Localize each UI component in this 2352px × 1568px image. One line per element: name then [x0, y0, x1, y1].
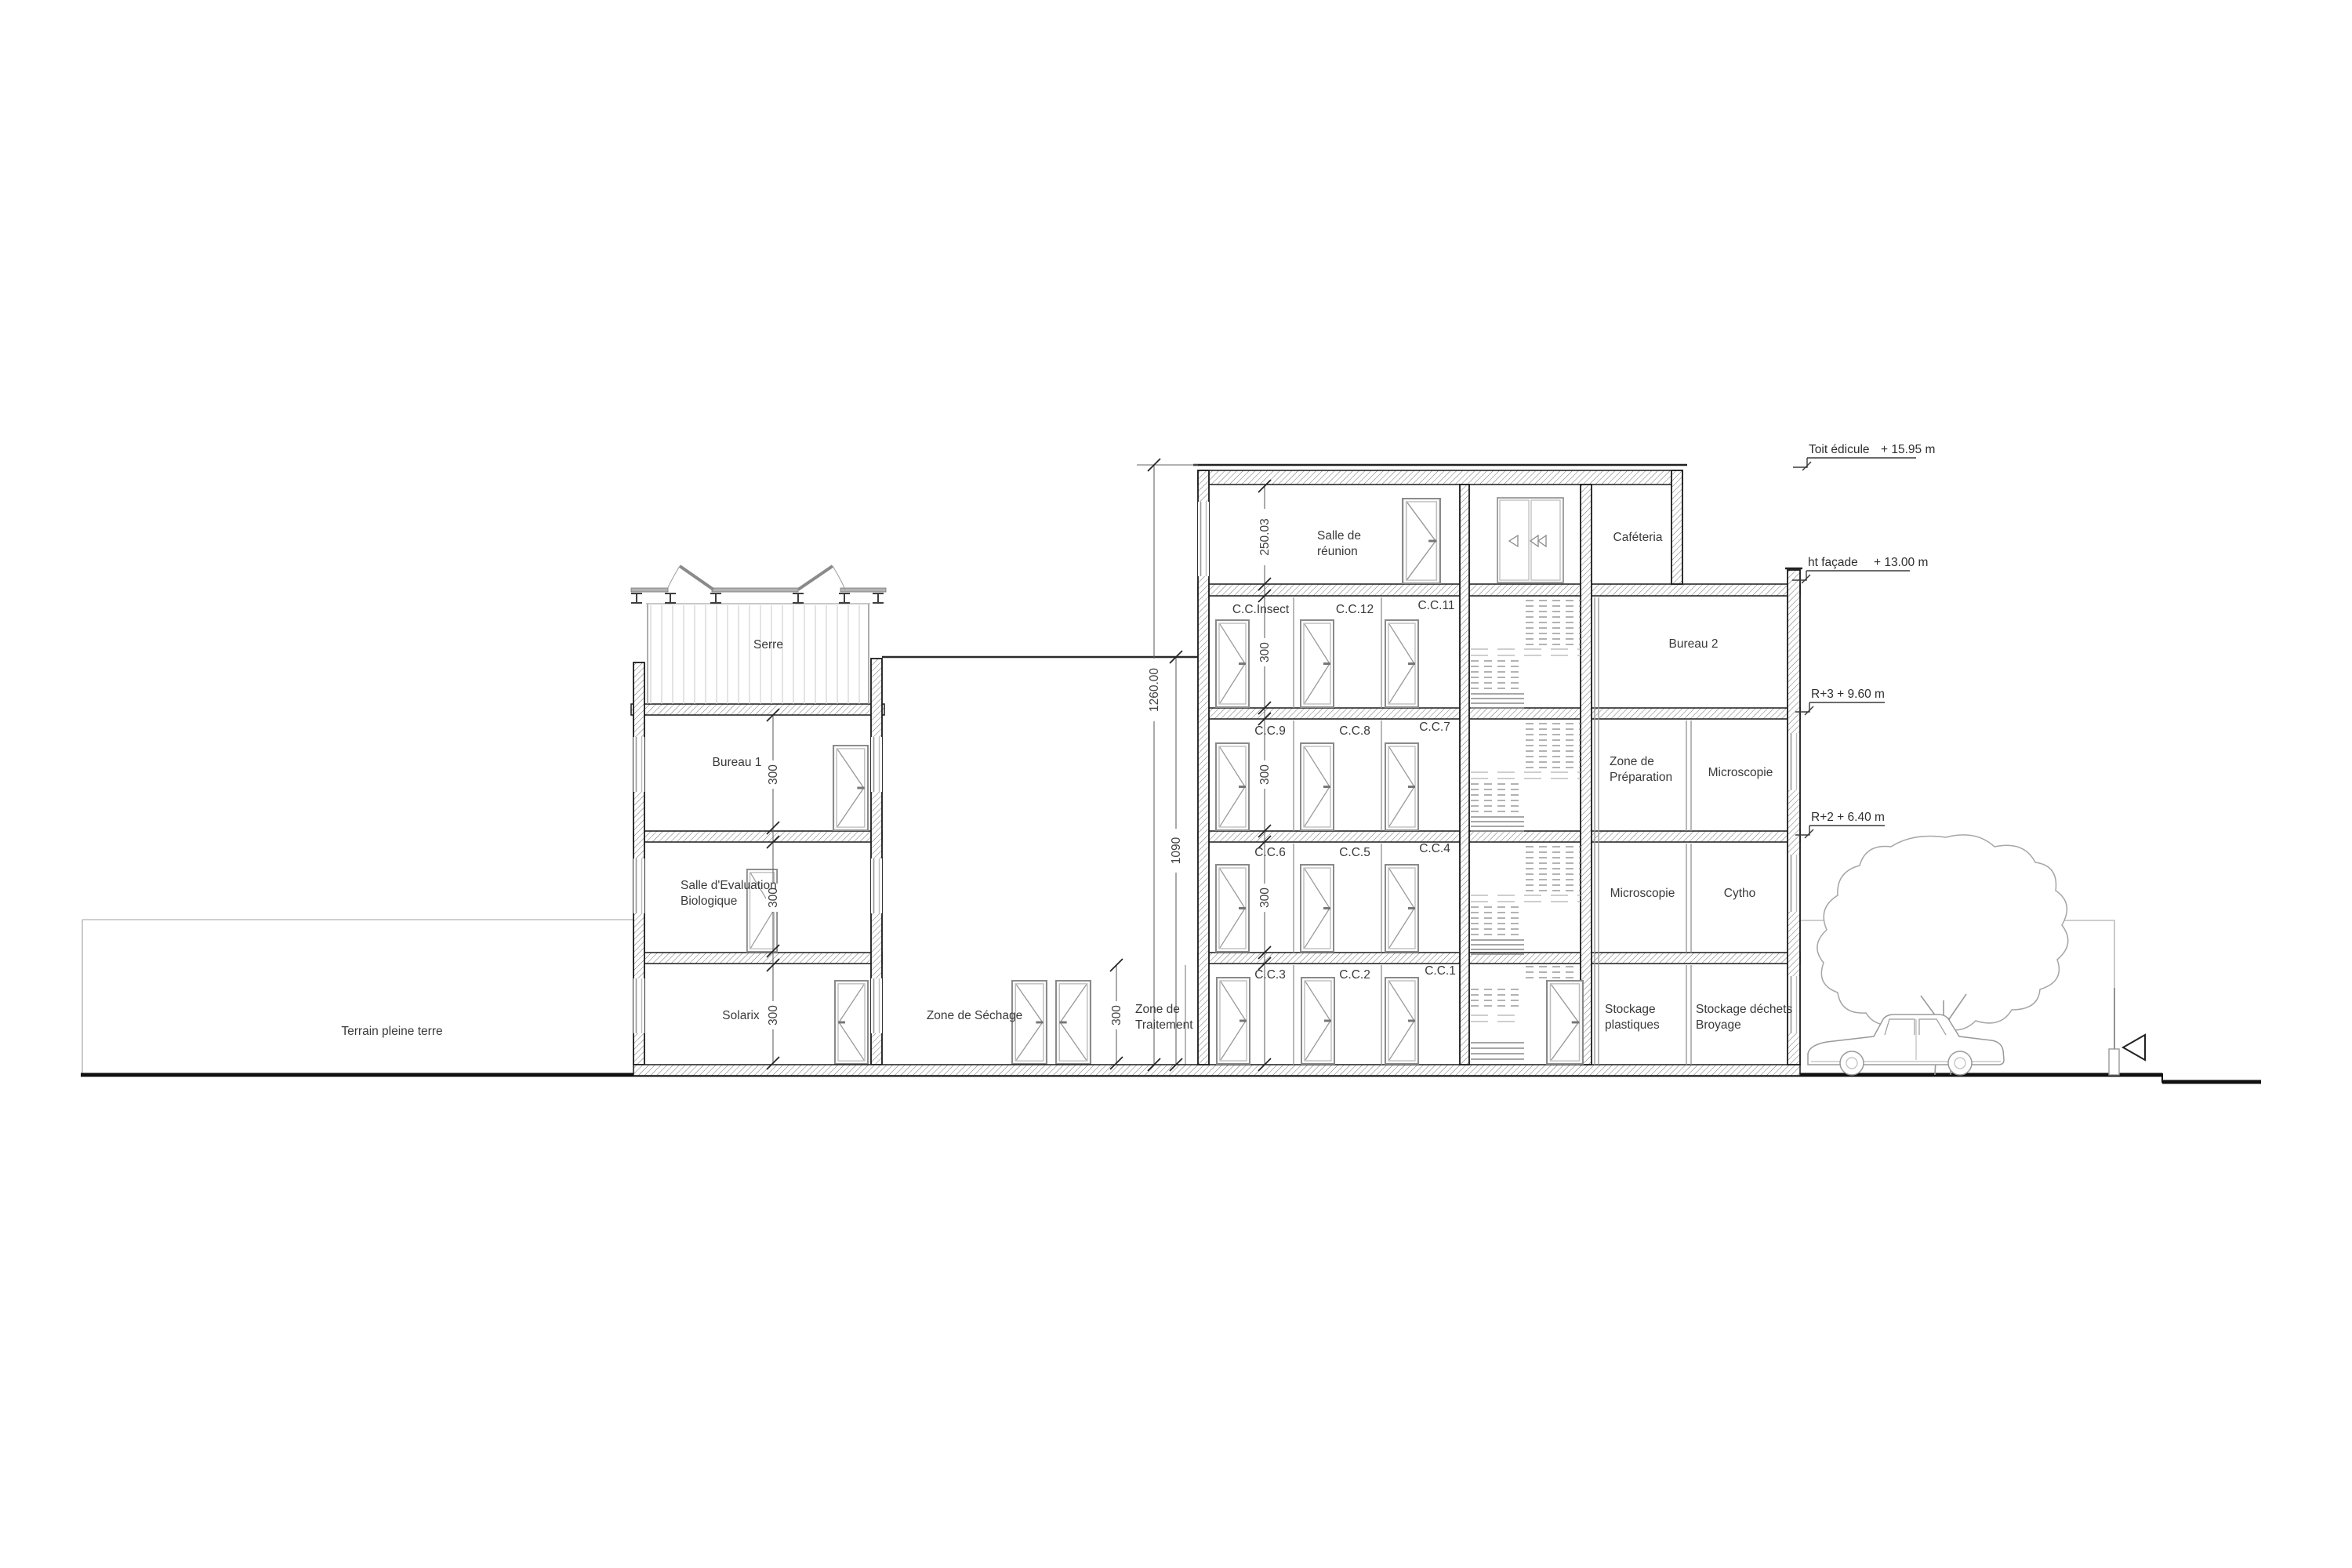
door-cc12 — [1301, 620, 1334, 707]
door-cc2 — [1301, 978, 1334, 1064]
boundary-post — [2109, 1049, 2119, 1075]
room-label-cc1: C.C.1 — [1425, 964, 1456, 978]
door-cc5 — [1301, 865, 1334, 952]
room-label-zone-preparation-1: Zone de — [1610, 755, 1654, 768]
serre-greenhouse — [646, 604, 870, 704]
door-cc3 — [1217, 978, 1250, 1064]
room-label-microscopie-r1: Microscopie — [1610, 887, 1675, 900]
dim-300-bureau1: 300 — [767, 764, 780, 785]
room-label-stockage-plastiques-2: plastiques — [1605, 1018, 1660, 1032]
room-label-salle-reunion-2: réunion — [1317, 545, 1358, 558]
dim-hall-height: 1090 — [1170, 837, 1183, 864]
serre-floor-slab — [631, 704, 884, 715]
room-label-salle-reunion-1: Salle de — [1317, 529, 1361, 543]
window-tower-edicule — [1198, 502, 1209, 576]
elevator — [1497, 498, 1563, 583]
room-label-bureau2: Bureau 2 — [1669, 637, 1719, 651]
room-label-bureau1: Bureau 1 — [713, 756, 762, 769]
window-leftwing-right-r1 — [871, 858, 882, 913]
room-label-cafeteria: Caféteria — [1613, 531, 1663, 544]
room-label-cc3: C.C.3 — [1254, 968, 1286, 982]
room-label-zone-sechage: Zone de Séchage — [927, 1009, 1022, 1022]
level-marker-labels: Toit édicule + 15.95 m ht façade + 13.00… — [1808, 443, 1935, 824]
car-wheel-front — [1948, 1051, 1972, 1075]
label-facade-value: + 13.00 m — [1874, 556, 1928, 569]
room-label-salle-eval-2: Biologique — [681, 895, 737, 908]
car-wheel-rear — [1840, 1051, 1864, 1075]
window-right-r1 — [1788, 855, 1799, 912]
label-r3: R+3 + 9.60 m — [1811, 688, 1885, 701]
label-r2: R+2 + 6.40 m — [1811, 811, 1885, 824]
dim-300-tower-r2: 300 — [1258, 764, 1272, 785]
room-label-cc-insect: C.C.Insect — [1232, 603, 1290, 616]
main-roof-slab — [1198, 584, 1800, 596]
label-toit-value: + 15.95 m — [1881, 443, 1935, 456]
room-label-cc7: C.C.7 — [1419, 720, 1450, 734]
room-label-salle-eval-1: Salle d'Evaluation — [681, 879, 777, 892]
door-sechage-right — [1056, 981, 1091, 1064]
dim-300-tower-r1: 300 — [1258, 887, 1272, 908]
room-label-zone-traitement-2: Traitement — [1135, 1018, 1193, 1032]
label-facade-name: ht façade — [1808, 556, 1858, 569]
door-cc8 — [1301, 743, 1334, 830]
room-label-cc12: C.C.12 — [1336, 603, 1374, 616]
window-left-r1 — [633, 858, 644, 913]
car — [1808, 1014, 2004, 1075]
door-cc-insect — [1216, 620, 1249, 707]
room-label-cc8: C.C.8 — [1339, 724, 1370, 738]
door-salle-reunion — [1403, 499, 1440, 583]
label-toit-name: Toit édicule — [1809, 443, 1870, 456]
window-leftwing-right-r2 — [871, 737, 882, 792]
dim-300-solarix: 300 — [767, 1005, 780, 1025]
roof-vent-right — [798, 566, 833, 590]
room-label-serre: Serre — [753, 638, 783, 652]
roof-vent-left — [680, 566, 713, 590]
i-beam-posts — [631, 593, 884, 603]
room-label-microscopie-r2: Microscopie — [1708, 766, 1773, 779]
slab-r3 — [1198, 708, 1800, 719]
building-section-drawing: 250.03 300 300 300 300 300 300 300 1260.… — [0, 0, 2352, 1568]
level-r2 — [1795, 826, 1885, 838]
room-label-solarix: Solarix — [722, 1009, 760, 1022]
room-label-cc5: C.C.5 — [1339, 846, 1370, 859]
door-bureau1 — [833, 746, 868, 830]
door-sechage-left — [1012, 981, 1047, 1064]
boundary-triangle-icon — [2123, 1035, 2145, 1060]
room-label-stockage-plastiques-1: Stockage — [1605, 1003, 1656, 1016]
level-ht-facade — [1792, 571, 1910, 583]
dim-300-sechage: 300 — [1110, 1005, 1123, 1025]
left-slab-r1 — [633, 831, 882, 842]
room-label-cc6: C.C.6 — [1254, 846, 1286, 859]
serre-roof — [631, 566, 886, 603]
door-cc7 — [1385, 743, 1418, 830]
core-right-wall — [1581, 485, 1592, 1065]
edicule-roof-slab — [1198, 470, 1682, 485]
door-solarix — [835, 981, 868, 1064]
dim-total-height: 1260.00 — [1148, 668, 1161, 712]
door-cc9 — [1216, 743, 1249, 830]
room-label-zone-traitement-1: Zone de — [1135, 1003, 1180, 1016]
room-label-cc9: C.C.9 — [1254, 724, 1286, 738]
dim-top-floor: 250.03 — [1258, 518, 1272, 555]
slab-r2 — [1198, 831, 1800, 842]
door-cc1 — [1385, 978, 1418, 1064]
window-left-r2 — [633, 737, 644, 792]
level-toit-edicule — [1793, 458, 1916, 470]
window-right-r3 — [1788, 733, 1799, 790]
door-stair-ground — [1547, 981, 1583, 1064]
edicule-right-wall — [1671, 470, 1682, 584]
core-left-wall — [1460, 485, 1469, 1065]
window-leftwing-right-rdc — [871, 978, 882, 1033]
level-markers — [1792, 458, 1916, 838]
room-label-stockage-dechets-1: Stockage déchets — [1696, 1003, 1792, 1016]
door-cc11 — [1385, 620, 1418, 707]
stairs-r3 — [1471, 601, 1581, 708]
ground-slab — [633, 1065, 1800, 1076]
stairs-r2 — [1471, 724, 1581, 831]
room-label-stockage-dechets-2: Broyage — [1696, 1018, 1741, 1032]
door-cc4 — [1385, 865, 1418, 952]
dim-300-tower-r3: 300 — [1258, 642, 1272, 662]
site-marker — [2109, 988, 2145, 1075]
tree-canopy — [1817, 835, 2068, 1030]
room-label-zone-preparation-2: Préparation — [1610, 771, 1672, 784]
architectural-section-page: 250.03 300 300 300 300 300 300 300 1260.… — [0, 0, 2352, 1568]
room-label-cc4: C.C.4 — [1419, 842, 1450, 855]
room-label-cc2: C.C.2 — [1339, 968, 1370, 982]
level-r3 — [1795, 702, 1885, 715]
stairs-r1 — [1471, 847, 1581, 954]
room-label-cytho: Cytho — [1724, 887, 1756, 900]
door-cc6 — [1216, 865, 1249, 952]
room-label-cc11: C.C.11 — [1417, 599, 1454, 612]
site-label-terrain: Terrain pleine terre — [341, 1025, 442, 1038]
window-left-rdc — [633, 978, 644, 1033]
left-slab-ground-ceiling — [633, 953, 882, 964]
